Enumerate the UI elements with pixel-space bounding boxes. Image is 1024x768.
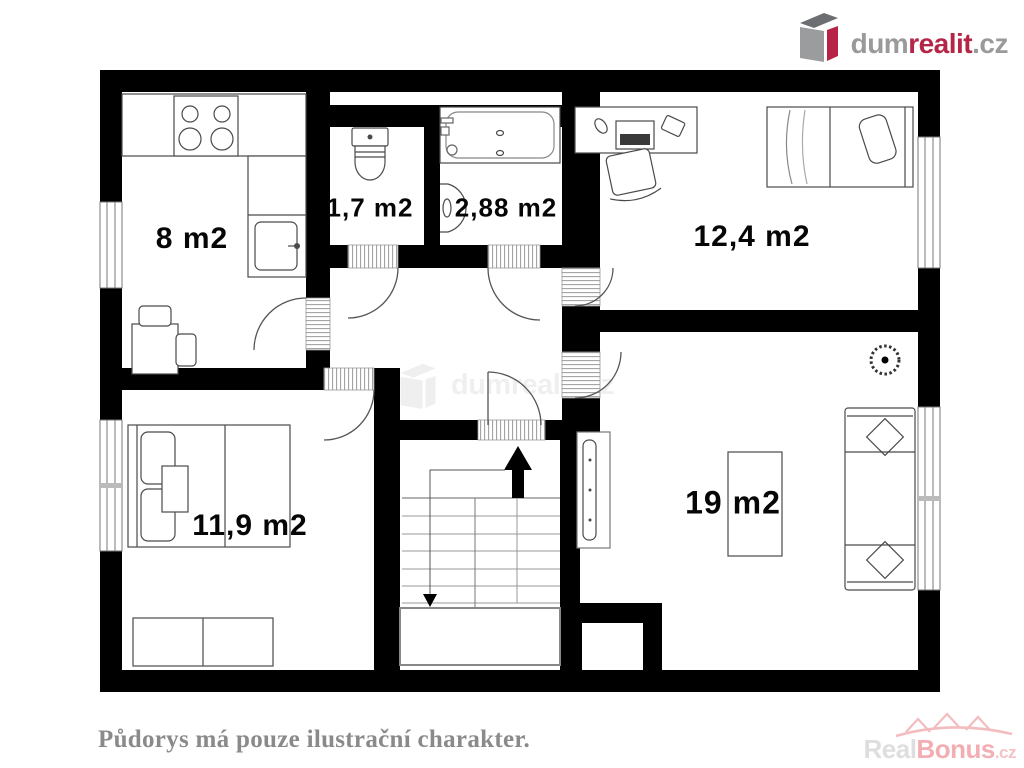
caption: Půdorys má pouze ilustrační charakter. <box>98 726 530 754</box>
down-arrow-icon <box>423 594 437 607</box>
wardrobe <box>133 618 273 666</box>
logo-text-accent: realit <box>908 28 972 59</box>
room-label-living-room: 19 m2 <box>685 485 781 522</box>
window-bedroom <box>100 420 122 551</box>
window-room-top-right <box>918 137 940 268</box>
bed-single <box>767 107 913 187</box>
room-label-bedroom-top-right: 12,4 m2 <box>693 220 810 254</box>
realbonus-watermark: RealBonus.cz <box>864 707 1017 762</box>
plant-icon <box>871 346 899 374</box>
logo-text-prefix: dum <box>851 28 909 59</box>
logo-text: dumrealit.cz <box>851 30 1008 62</box>
floor-plan: dumrealit.cz <box>0 0 1024 768</box>
sofa <box>845 408 915 590</box>
bathtub-icon <box>440 107 560 163</box>
staircase <box>400 446 560 665</box>
logo-text-suffix: .cz <box>972 28 1008 59</box>
dining-table <box>132 306 196 374</box>
realbonus-suffix: .cz <box>995 743 1016 762</box>
stove-icon <box>174 96 238 156</box>
room-label-bedroom-bottom-left: 11,9 m2 <box>192 509 307 543</box>
floor-plan-drawing <box>0 0 1024 768</box>
realbonus-prefix: Real <box>864 734 917 764</box>
realbonus-text: RealBonus.cz <box>864 736 1017 762</box>
houses-icon <box>894 707 1016 737</box>
realbonus-accent: Bonus <box>916 734 994 764</box>
door-thresholds <box>306 245 600 440</box>
room-label-bathroom: 2,88 m2 <box>455 193 557 224</box>
window-living-room <box>918 407 940 590</box>
office-chair <box>601 147 662 205</box>
kitchen-sink-icon <box>255 222 300 270</box>
room-label-wc: 1,7 m2 <box>327 193 414 224</box>
room-label-kitchen: 8 m2 <box>156 222 228 256</box>
window-kitchen <box>100 202 122 288</box>
dumrealit-logo: dumrealit.cz <box>796 10 1008 62</box>
stair-landing <box>400 608 560 665</box>
up-arrow-icon <box>504 446 532 498</box>
toilet-icon <box>352 128 388 180</box>
desk <box>575 107 697 153</box>
radiator <box>577 432 610 548</box>
logo-box-icon <box>796 10 844 62</box>
